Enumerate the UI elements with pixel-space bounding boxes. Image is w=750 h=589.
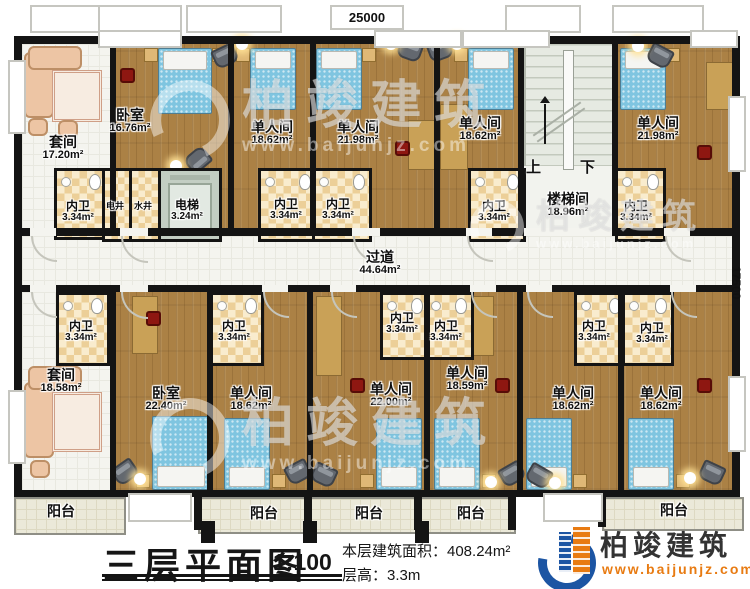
room-area: 22.00m² [351, 397, 431, 409]
room-name: 内卫 [564, 320, 624, 333]
balcony-label: 阳台 [443, 506, 499, 521]
ceiling-lamp [134, 473, 146, 485]
room-area: 16.76m² [90, 123, 170, 135]
chair [146, 311, 161, 326]
title-underline [102, 579, 342, 581]
bed [152, 416, 210, 490]
stair-down-label: 下 [580, 156, 595, 177]
wall [517, 292, 523, 490]
title-underline [102, 574, 342, 577]
stair-opening [524, 228, 612, 236]
nightstand [144, 48, 158, 62]
balcony-name: 阳台 [443, 506, 499, 521]
bed [628, 418, 674, 490]
room-area: 17.20m² [23, 150, 103, 162]
logo-building-icon [559, 532, 571, 572]
bed [434, 418, 480, 490]
ceiling-lamp [684, 472, 696, 484]
room-area: 3.34m² [310, 211, 366, 222]
chair [697, 145, 712, 160]
floor-height-text: 层高：3.3m [342, 564, 420, 585]
window-box [128, 493, 192, 522]
room-name: 卧室 [90, 108, 170, 123]
balcony-label: 阳台 [646, 503, 702, 518]
room-name: 套间 [23, 135, 103, 150]
room-label-bath: 内卫3.34m² [608, 200, 664, 224]
window [690, 30, 738, 48]
stair-up-label: 上 [526, 156, 541, 177]
room-area: 18.96m² [528, 207, 608, 219]
door-opening [526, 285, 552, 292]
room-label-corridor: 过道44.64m² [342, 250, 418, 277]
room-name: 电井 [100, 202, 130, 212]
room-area: 3.34m² [622, 335, 682, 346]
room-label-bath: 内卫3.34m² [51, 320, 111, 344]
door-opening [664, 228, 690, 236]
desk [408, 120, 436, 170]
room-label-single-top-1: 单人间18.62m² [232, 120, 312, 147]
nightstand [236, 48, 250, 62]
room-label-single-bottom-3: 单人间18.59m² [427, 366, 507, 393]
room-area: 3.34m² [47, 213, 109, 224]
nightstand [360, 474, 374, 488]
room-name: 套间 [21, 368, 101, 383]
room-label-single-bottom-4: 单人间18.62m² [533, 386, 613, 413]
window-box [543, 493, 603, 522]
room-name: 内卫 [416, 320, 476, 333]
room-label-single-bottom-2: 单人间22.00m² [351, 382, 431, 409]
wall [508, 490, 516, 530]
room-area: 18.62m² [533, 401, 613, 413]
bed [376, 418, 422, 490]
room-name: 单人间 [351, 382, 431, 397]
brand-logo: 柏竣建筑 www.baijunjz.com [538, 524, 750, 586]
room-name: 内卫 [466, 200, 522, 213]
room-label-electric-shaft: 电井 [100, 202, 130, 212]
dimension-top: 25000 [330, 5, 404, 30]
room-label-bath: 内卫3.34m² [564, 320, 624, 344]
room-area: 18.62m² [211, 401, 291, 413]
window [374, 30, 462, 48]
window-sill [612, 5, 704, 33]
building-area-text: 本层建筑面积：408.24m² [342, 540, 510, 561]
room-label-bedroom-bottom: 卧室22.40m² [126, 386, 206, 413]
door-opening [30, 285, 56, 292]
room-area: 18.62m² [621, 401, 701, 413]
room-label-single-bottom-5: 单人间18.62m² [621, 386, 701, 413]
room-area: 18.58m² [21, 383, 101, 395]
window-sill [98, 5, 182, 33]
bed [224, 418, 270, 490]
room-label-bath: 内卫3.34m² [258, 198, 314, 222]
door-opening [120, 285, 148, 292]
room-area: 3.34m² [466, 213, 522, 224]
room-label-elevator: 电梯3.24m² [158, 199, 216, 223]
wall [307, 292, 313, 490]
sofa [28, 46, 82, 70]
room-name: 卧室 [126, 386, 206, 401]
room-label-single-bottom-1: 单人间18.62m² [211, 386, 291, 413]
door-opening [466, 228, 492, 236]
room-area: 18.62m² [440, 131, 520, 143]
room-label-bath: 内卫3.34m² [310, 198, 366, 222]
ceiling-lamp [485, 476, 497, 488]
plan-scale: 1:100 [273, 549, 332, 576]
logo-website: www.baijunjz.com [602, 561, 750, 577]
nightstand [272, 474, 286, 488]
room-label-suite-top: 套间17.20m² [23, 135, 103, 162]
room-name: 单人间 [621, 386, 701, 401]
room-area: 21.98m² [318, 135, 398, 147]
room-area: 22.40m² [126, 401, 206, 413]
room-label-bath: 内卫3.34m² [204, 320, 264, 344]
balcony-label: 阳台 [341, 506, 397, 521]
room-name: 水井 [128, 202, 158, 212]
room-area: 3.34m² [258, 211, 314, 222]
window-sill [505, 5, 581, 33]
armchair-small [30, 460, 50, 478]
room-area: 3.34m² [204, 333, 264, 344]
stair-arrow-head [540, 96, 550, 103]
room-area: 3.24m² [158, 212, 216, 223]
room-name: 单人间 [318, 120, 398, 135]
room-label-water-shaft: 水井 [128, 202, 158, 212]
window [98, 30, 182, 48]
nightstand [454, 48, 468, 62]
bed [468, 48, 514, 110]
stair-direction-arrow [544, 104, 546, 144]
room-label-suite-bottom: 套间18.58m² [21, 368, 101, 395]
room-area: 3.34m² [564, 333, 624, 344]
room-label-bath: 内卫3.34m² [622, 322, 682, 346]
room-area: 3.34m² [51, 333, 111, 344]
logo-building-icon [573, 527, 590, 574]
rug [52, 392, 102, 452]
room-area: 44.64m² [342, 265, 418, 277]
window [8, 60, 26, 134]
bed [250, 48, 296, 110]
window [728, 376, 746, 452]
room-area: 18.59m² [427, 381, 507, 393]
room-name: 内卫 [622, 322, 682, 335]
balcony-label: 阳台 [33, 504, 89, 519]
window [8, 390, 26, 464]
room-area: 21.98m² [618, 131, 698, 143]
room-label-bath: 内卫3.34m² [466, 200, 522, 224]
room-label-stairwell: 楼梯间18.96m² [528, 192, 608, 219]
dimension-right: 17500 [729, 238, 743, 328]
door-opening [330, 285, 356, 292]
room-area: 18.62m² [232, 135, 312, 147]
room-name: 内卫 [204, 320, 264, 333]
room-name: 电梯 [158, 199, 216, 212]
room-name: 内卫 [310, 198, 366, 211]
logo-brand-name: 柏竣建筑 [600, 524, 732, 564]
nightstand [362, 48, 376, 62]
room-area: 3.34m² [416, 333, 476, 344]
door-opening [352, 228, 380, 236]
armchair-small [28, 118, 48, 136]
room-area: 3.34m² [608, 213, 664, 224]
room-name: 单人间 [618, 116, 698, 131]
door-opening [30, 228, 56, 236]
room-name: 内卫 [608, 200, 664, 213]
window-sill [186, 5, 282, 33]
window-sill [30, 5, 100, 33]
room-label-single-top-2: 单人间21.98m² [318, 120, 398, 147]
floor-plan-page: 套间17.20m² 卧室16.76m² 单人间18.62m² 单人间21.98m… [0, 0, 750, 589]
balcony-name: 阳台 [341, 506, 397, 521]
room-label-bedroom-top: 卧室16.76m² [90, 108, 170, 135]
room-name: 楼梯间 [528, 192, 608, 207]
room-name: 内卫 [51, 320, 111, 333]
room-name: 单人间 [211, 386, 291, 401]
chair [120, 68, 135, 83]
bed [316, 48, 362, 110]
door-opening [262, 285, 288, 292]
room-name: 单人间 [533, 386, 613, 401]
window [462, 30, 550, 48]
window [728, 96, 746, 172]
room-name: 单人间 [232, 120, 312, 135]
balcony-label: 阳台 [236, 506, 292, 521]
room-name: 单人间 [427, 366, 507, 381]
room-label-bath: 内卫3.34m² [416, 320, 476, 344]
room-name: 过道 [342, 250, 418, 265]
room-label-single-top-4: 单人间21.98m² [618, 116, 698, 143]
door-opening [470, 285, 496, 292]
door-opening [120, 228, 148, 236]
nightstand [573, 474, 587, 488]
room-name: 单人间 [440, 116, 520, 131]
balcony-name: 阳台 [236, 506, 292, 521]
door-opening [670, 285, 696, 292]
ceiling-lamp [549, 477, 561, 489]
balcony-name: 阳台 [646, 503, 702, 518]
bed [158, 48, 212, 114]
wall [14, 490, 740, 497]
balcony-name: 阳台 [33, 504, 89, 519]
room-name: 内卫 [258, 198, 314, 211]
room-label-single-top-3: 单人间18.62m² [440, 116, 520, 143]
